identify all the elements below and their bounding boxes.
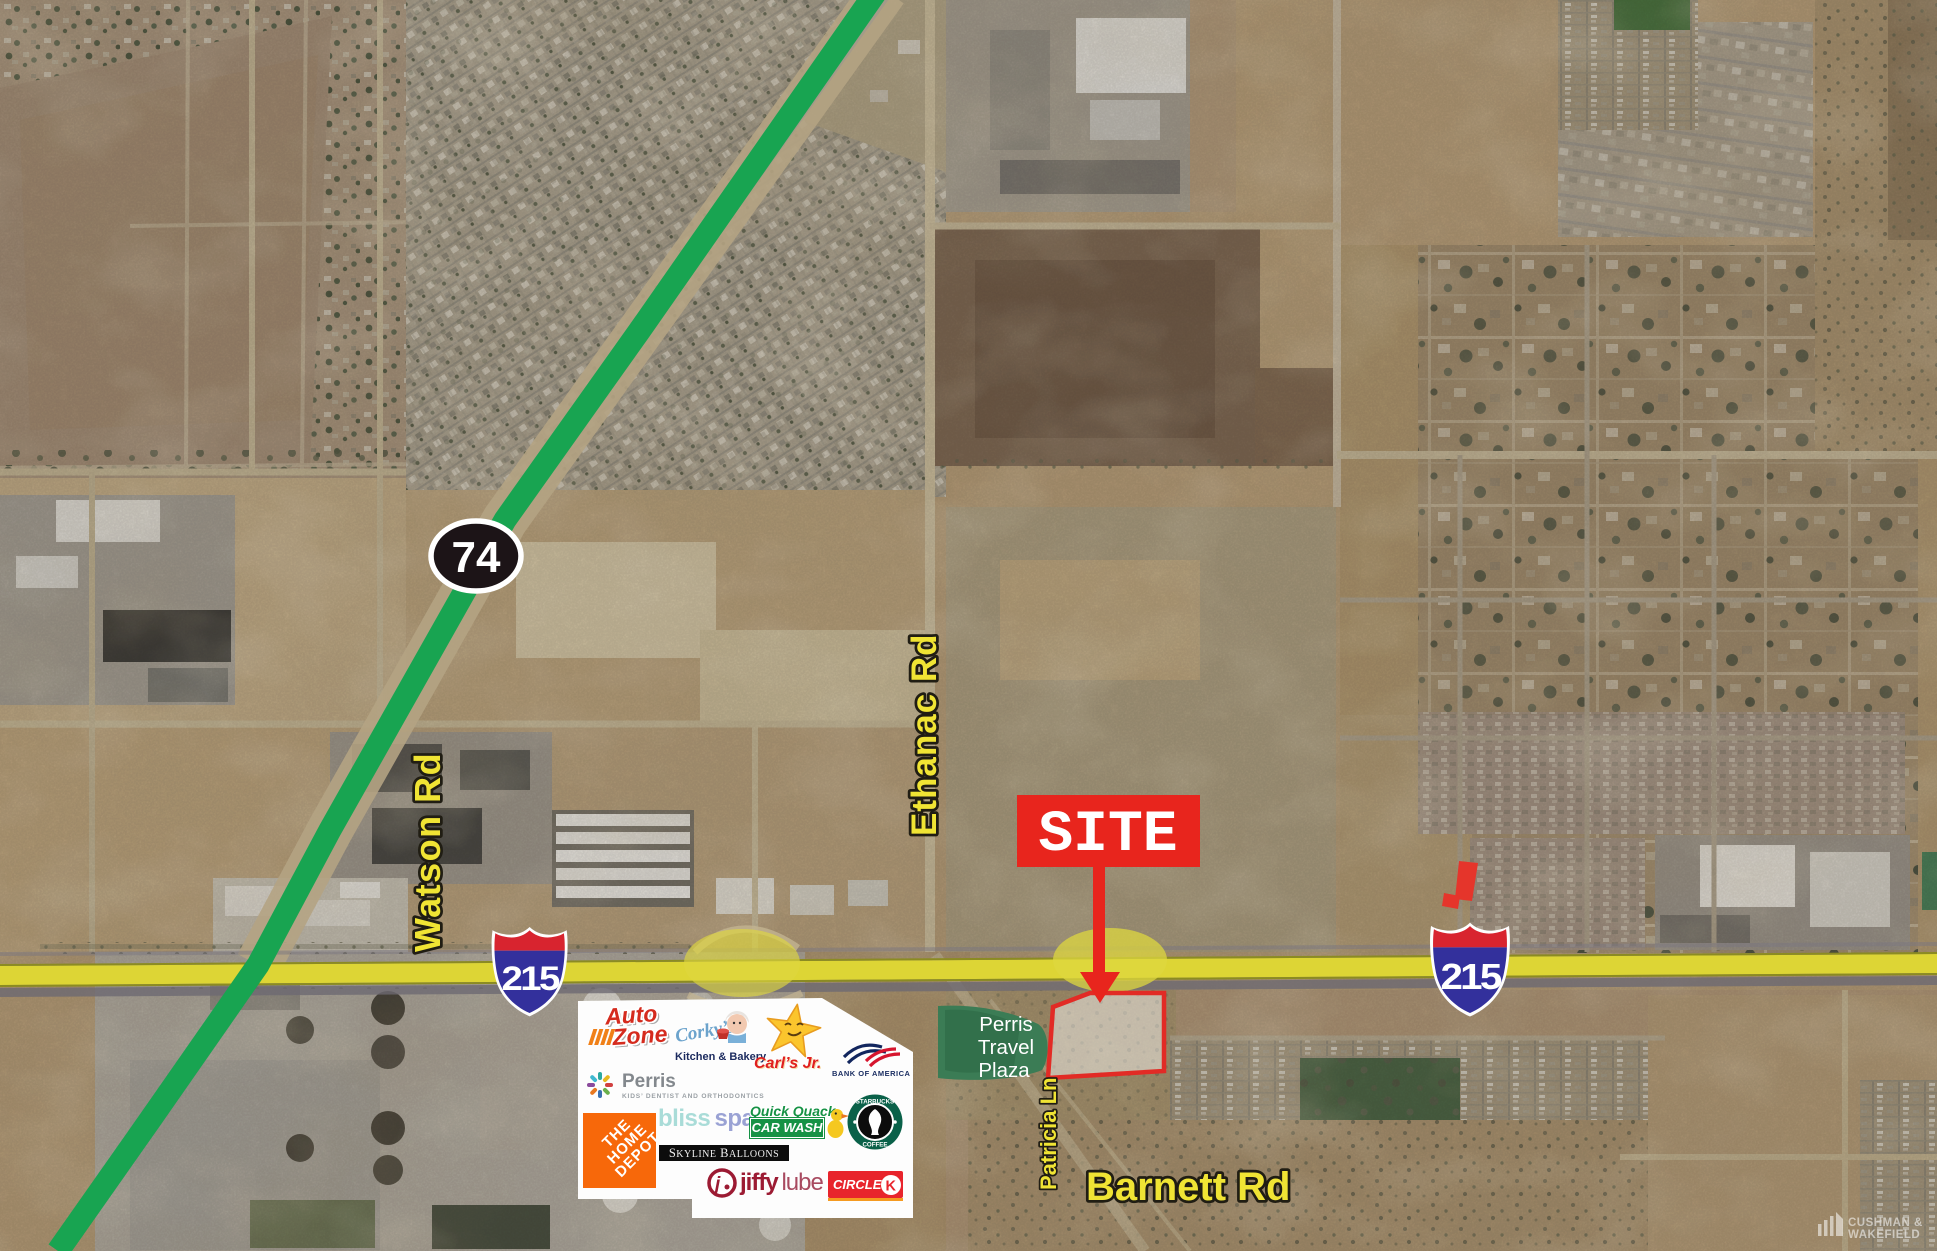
svg-text:Patricia Ln: Patricia Ln [1036,1078,1061,1190]
svg-text:Plaza: Plaza [978,1059,1030,1082]
svg-text:74: 74 [452,533,501,582]
svg-text:CUSHMAN &: CUSHMAN & [1848,1217,1923,1229]
svg-text:Watson Rd: Watson Rd [407,752,448,952]
svg-text:Barnett Rd: Barnett Rd [1086,1165,1290,1209]
svg-text:Ethanac Rd: Ethanac Rd [905,633,944,836]
svg-text:K: K [886,1178,897,1194]
svg-text:WAKEFIELD: WAKEFIELD [1848,1229,1920,1241]
svg-text:STARBUCKS: STARBUCKS [856,1099,894,1106]
svg-text:Travel: Travel [978,1036,1034,1059]
svg-text:SITE: SITE [1038,803,1177,868]
svg-text:Perris: Perris [979,1013,1033,1036]
svg-text:COFFEE: COFFEE [862,1142,887,1149]
